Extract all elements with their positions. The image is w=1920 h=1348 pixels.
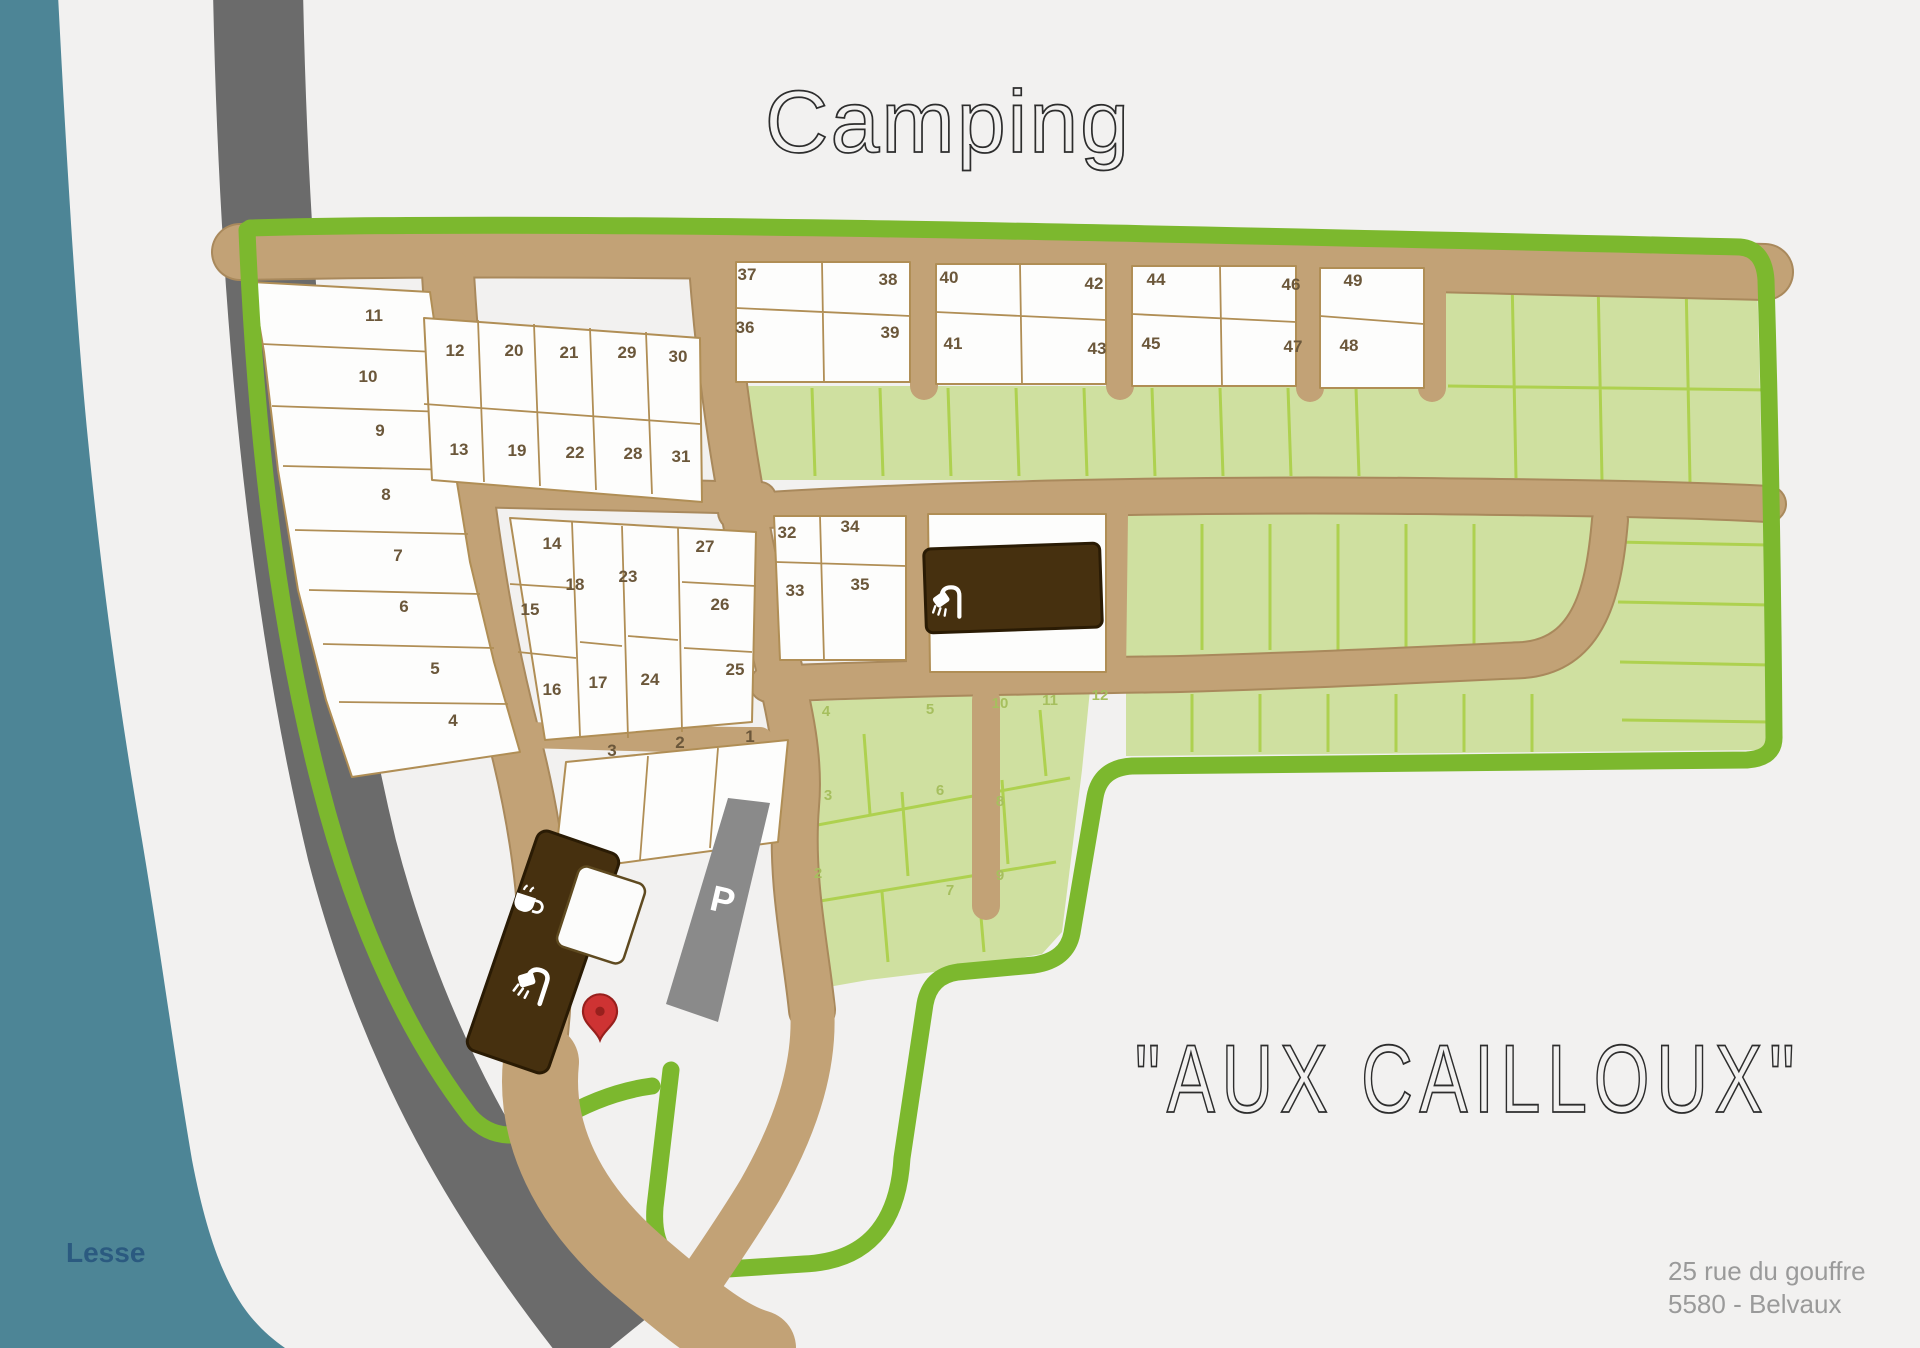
plot-number: 49 <box>1344 271 1363 290</box>
plot-number: 39 <box>881 323 900 342</box>
plot-number: 3 <box>607 741 616 760</box>
plot-number: 31 <box>672 447 691 466</box>
plot-number: 47 <box>1284 337 1303 356</box>
plot-number: 5 <box>430 659 439 678</box>
plot-number: 35 <box>851 575 870 594</box>
plot-number: 17 <box>589 673 608 692</box>
green-plot-number: 8 <box>996 793 1004 810</box>
plot-number: 33 <box>786 581 805 600</box>
green-plot-number: 3 <box>824 787 832 804</box>
plot-number: 27 <box>696 537 715 556</box>
plot-number: 29 <box>618 343 637 362</box>
plot-number: 12 <box>446 341 465 360</box>
plot-number: 7 <box>393 546 402 565</box>
plot-number: 23 <box>619 567 638 586</box>
plot-number: 48 <box>1340 336 1359 355</box>
plot-number: 40 <box>940 268 959 287</box>
plot-number: 28 <box>624 444 643 463</box>
plot-number: 38 <box>879 270 898 289</box>
plot-number: 1 <box>745 727 754 746</box>
plot-number: 10 <box>359 367 378 386</box>
plot-number: 11 <box>365 306 383 325</box>
plot-number: 20 <box>505 341 524 360</box>
green-plot-number: 12 <box>1092 687 1109 704</box>
green-plot-number: 10 <box>992 695 1009 712</box>
address-line1: 25 rue du gouffre <box>1668 1256 1866 1286</box>
plot-number: 42 <box>1085 274 1104 293</box>
plot-number: 25 <box>726 660 745 679</box>
address-line2: 5580 - Belvaux <box>1668 1289 1841 1319</box>
plot-number: 36 <box>736 318 755 337</box>
river-label: Lesse <box>66 1237 145 1268</box>
green-meadow-lower <box>786 690 1090 992</box>
plot-number: 18 <box>566 575 585 594</box>
plot-number: 2 <box>675 733 684 752</box>
plot-number: 6 <box>399 597 408 616</box>
plot-number: 16 <box>543 680 562 699</box>
plot-number: 32 <box>778 523 797 542</box>
camping-map: P Camping "AUX CAILLOUX" 25 rue du gouff… <box>0 0 1920 1348</box>
plot-number: 15 <box>521 600 540 619</box>
plot-number: 34 <box>841 517 860 536</box>
plot-number: 8 <box>381 485 390 504</box>
plot-block-48-49 <box>1320 268 1424 388</box>
plot-number: 45 <box>1142 334 1161 353</box>
green-plot-number: 5 <box>926 701 934 718</box>
plot-number: 30 <box>669 347 688 366</box>
green-plot-number: 2 <box>814 865 822 882</box>
plot-number: 19 <box>508 441 527 460</box>
plot-number: 44 <box>1147 270 1166 289</box>
location-pin-icon <box>583 994 617 1040</box>
plot-number: 43 <box>1088 339 1107 358</box>
plot-number: 24 <box>641 670 660 689</box>
green-plot-number: 4 <box>822 703 831 720</box>
plot-number: 46 <box>1282 275 1301 294</box>
plot-number: 41 <box>944 334 963 353</box>
plot-number: 21 <box>560 343 579 362</box>
green-plot-number: 9 <box>996 867 1004 884</box>
plot-number: 37 <box>738 265 757 284</box>
site-map: P Camping "AUX CAILLOUX" 25 rue du gouff… <box>0 0 1920 1348</box>
plot-number: 4 <box>448 711 458 730</box>
green-plot-number: 7 <box>946 882 954 899</box>
green-plot-number: 6 <box>936 782 944 799</box>
plot-number: 9 <box>375 421 384 440</box>
plot-number: 26 <box>711 595 730 614</box>
site-name: "AUX CAILLOUX" <box>1135 1025 1801 1133</box>
plot-number: 14 <box>543 534 562 553</box>
green-plot-number: 11 <box>1042 692 1058 709</box>
plot-number: 22 <box>566 443 585 462</box>
plot-number: 13 <box>450 440 469 459</box>
map-title: Camping <box>765 72 1131 171</box>
